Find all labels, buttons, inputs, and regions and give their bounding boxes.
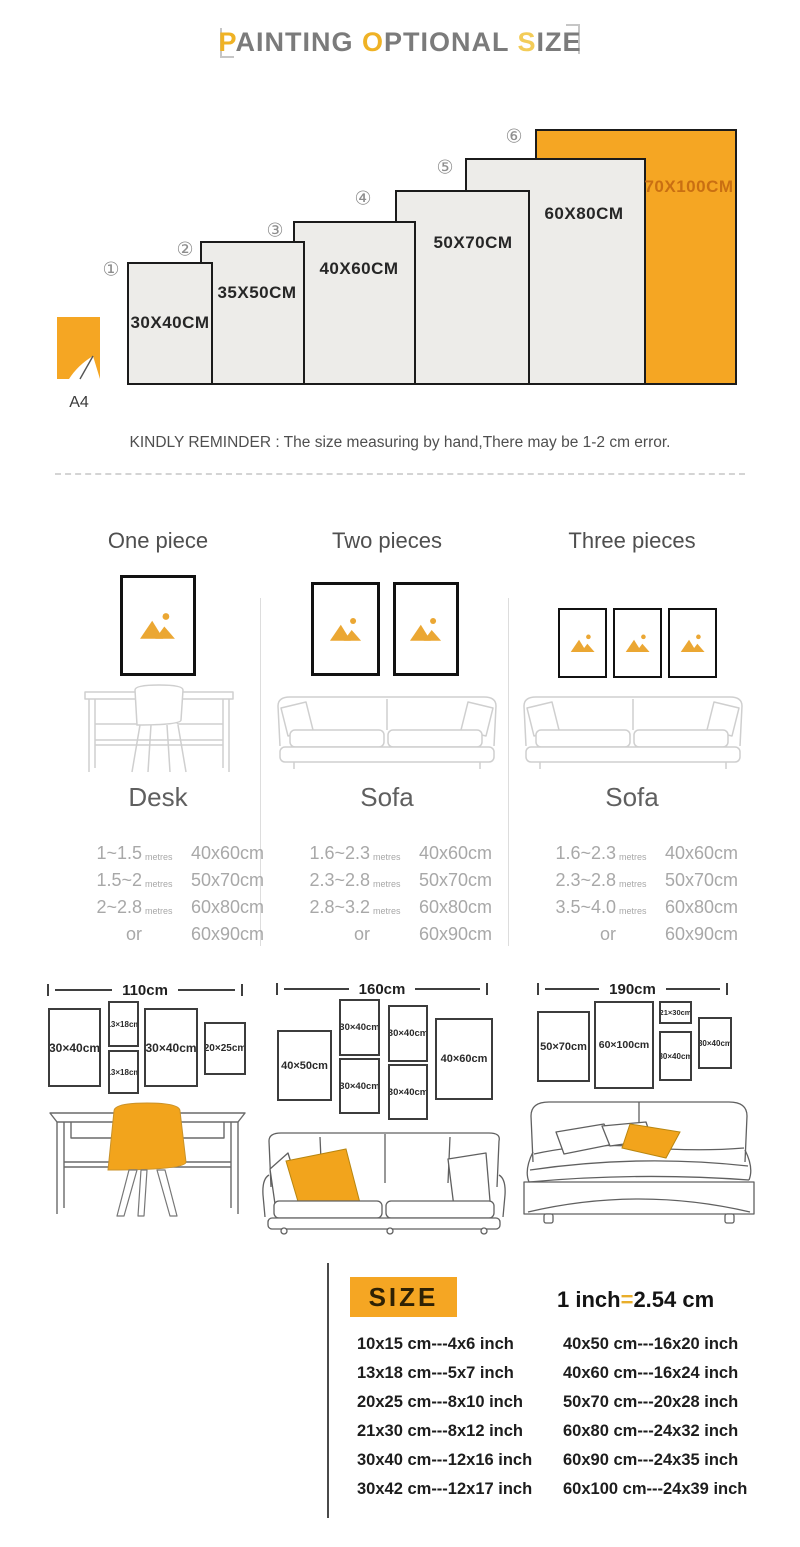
width-ruler-160cm: 160cm	[276, 982, 488, 996]
distance-row: 2.3~2.8metres50x70cm	[532, 867, 736, 894]
recommended-size: 50x70cm	[655, 870, 738, 891]
distance-table-sofa-2pc: 1.6~2.3metres40x60cm 2.3~2.8metres50x70c…	[286, 840, 490, 948]
wall-frame: 13×18cm	[108, 1001, 139, 1047]
conversion-row: 30x40 cm---12x16 inch	[357, 1446, 532, 1475]
canvas-frame	[558, 608, 607, 678]
distance-table-desk: 1~1.5metres40x60cm 1.5~2metres50x70cm 2~…	[58, 840, 262, 948]
distance-range: or	[532, 924, 616, 945]
ruler-line	[55, 989, 112, 991]
sofa-sketch	[268, 688, 506, 772]
conversion-row: 60x80 cm---24x32 inch	[563, 1417, 747, 1446]
distance-row: 3.5~4.0metres60x80cm	[532, 894, 736, 921]
canvas-frame	[311, 582, 380, 676]
wall-frame: 30×40cm	[698, 1017, 732, 1069]
canvas-frame	[120, 575, 196, 676]
sofa-sketch	[514, 688, 752, 772]
distance-row: 2.8~3.2metres60x80cm	[286, 894, 490, 921]
ruler-label: 160cm	[355, 981, 410, 998]
wall-frame: 30×40cm	[388, 1005, 428, 1062]
size-bar-label: 60X80CM	[544, 204, 623, 224]
distance-range: 1.5~2	[58, 870, 142, 891]
distance-unit	[616, 931, 655, 938]
image-placeholder-icon	[329, 616, 363, 642]
desk-sketch	[80, 684, 238, 776]
equation-lhs: 1 inch	[557, 1287, 621, 1312]
size-bar-label: 40X60CM	[319, 259, 398, 279]
distance-row: 1.6~2.3metres40x60cm	[532, 840, 736, 867]
conversion-list-right: 40x50 cm---16x20 inch 40x60 cm---16x24 i…	[563, 1330, 747, 1504]
conversion-row: 40x60 cm---16x24 inch	[563, 1359, 747, 1388]
size-bar-label-highlight: 70X100CM	[644, 177, 733, 197]
painting-size-infographic: PAINTING OPTIONAL SIZE 30X40CM 35X50CM 4…	[0, 0, 800, 1547]
circled-number: ⑥	[505, 126, 522, 149]
recommended-size: 40x60cm	[655, 843, 738, 864]
wall-frame: 30×40cm	[48, 1008, 101, 1087]
recommended-size: 60x80cm	[409, 897, 492, 918]
distance-unit	[370, 931, 409, 938]
distance-table-sofa-3pc: 1.6~2.3metres40x60cm 2.3~2.8metres50x70c…	[532, 840, 736, 948]
furniture-label-desk: Desk	[128, 782, 187, 813]
title-text: AINTING	[235, 27, 362, 57]
wall-frame: 20×25cm	[204, 1022, 246, 1075]
recommended-size: 40x60cm	[181, 843, 264, 864]
ruler-tick	[47, 984, 49, 996]
distance-row: or60x90cm	[532, 921, 736, 948]
conversion-row: 13x18 cm---5x7 inch	[357, 1359, 532, 1388]
column-divider	[508, 598, 509, 946]
distance-unit: metres	[370, 872, 409, 889]
distance-row: 1~1.5metres40x60cm	[58, 840, 262, 867]
width-ruler-190cm: 190cm	[537, 982, 728, 996]
distance-range: 1.6~2.3	[532, 843, 616, 864]
distance-row: 1.6~2.3metres40x60cm	[286, 840, 490, 867]
recommended-size: 60x90cm	[181, 924, 264, 945]
recommended-size: 60x90cm	[655, 924, 738, 945]
distance-range: 1~1.5	[58, 843, 142, 864]
size-bar-35x50	[200, 241, 305, 385]
wall-frame: 30×40cm	[388, 1064, 428, 1120]
title-letter: P	[218, 27, 235, 57]
distance-row: 2.3~2.8metres50x70cm	[286, 867, 490, 894]
ruler-tick	[241, 984, 243, 996]
column-header-three-pieces: Three pieces	[568, 528, 695, 554]
distance-row: 2~2.8metres60x80cm	[58, 894, 262, 921]
page-title: PAINTING OPTIONAL SIZE	[0, 27, 800, 58]
conversion-row: 60x100 cm---24x39 inch	[563, 1475, 747, 1504]
conversion-row: 50x70 cm---20x28 inch	[563, 1388, 747, 1417]
wall-frame: 13×18cm	[108, 1050, 139, 1094]
wall-frame: 30×40cm	[144, 1008, 198, 1087]
size-badge: SIZE	[350, 1277, 457, 1317]
distance-unit: metres	[616, 899, 655, 916]
a4-paper-icon	[56, 316, 102, 382]
conversion-row: 10x15 cm---4x6 inch	[357, 1330, 532, 1359]
a4-label: A4	[69, 394, 89, 412]
inch-cm-equation: 1 inch=2.54 cm	[557, 1287, 714, 1313]
width-ruler-110cm: 110cm	[47, 983, 243, 997]
title-text: IZE	[537, 27, 582, 57]
image-placeholder-icon	[625, 633, 651, 653]
size-bar-label: 35X50CM	[217, 283, 296, 303]
title-letter: S	[518, 27, 537, 57]
wall-frame: 30×40cm	[339, 999, 380, 1056]
wall-frame: 40×50cm	[277, 1030, 332, 1101]
equals-sign: =	[621, 1287, 634, 1312]
recommended-size: 50x70cm	[181, 870, 264, 891]
wall-frame: 60×100cm	[594, 1001, 654, 1089]
bed-sketch	[520, 1092, 758, 1224]
title-text: PTIONAL	[384, 27, 518, 57]
sofa-with-pillow-sketch	[260, 1125, 510, 1235]
ruler-line	[666, 988, 720, 990]
distance-row: or60x90cm	[58, 921, 262, 948]
wall-frame: 30×40cm	[659, 1031, 692, 1081]
title-letter: O	[362, 27, 384, 57]
conversion-row: 21x30 cm---8x12 inch	[357, 1417, 532, 1446]
distance-unit: metres	[142, 872, 181, 889]
size-bar-40x60	[293, 221, 416, 385]
distance-unit: metres	[142, 899, 181, 916]
ruler-line	[415, 988, 480, 990]
wall-frame: 50×70cm	[537, 1011, 590, 1082]
recommended-size: 50x70cm	[409, 870, 492, 891]
distance-range: 2~2.8	[58, 897, 142, 918]
conversion-row: 60x90 cm---24x35 inch	[563, 1446, 747, 1475]
canvas-frame	[668, 608, 717, 678]
wall-frame: 40×60cm	[435, 1018, 493, 1100]
recommended-size: 60x90cm	[409, 924, 492, 945]
recommended-size: 40x60cm	[409, 843, 492, 864]
furniture-label-sofa: Sofa	[360, 782, 414, 813]
canvas-frame	[613, 608, 662, 678]
image-placeholder-icon	[139, 611, 177, 640]
distance-unit: metres	[616, 872, 655, 889]
reminder-text: KINDLY REMINDER : The size measuring by …	[0, 434, 800, 452]
ruler-tick	[726, 983, 728, 995]
distance-unit	[142, 931, 181, 938]
circled-number: ①	[102, 259, 119, 282]
circled-number: ⑤	[436, 157, 453, 180]
ruler-tick	[537, 983, 539, 995]
ruler-label: 110cm	[118, 982, 172, 999]
ruler-label: 190cm	[605, 981, 660, 998]
conversion-row: 20x25 cm---8x10 inch	[357, 1388, 532, 1417]
image-placeholder-icon	[680, 633, 706, 653]
conversion-list-left: 10x15 cm---4x6 inch 13x18 cm---5x7 inch …	[357, 1330, 532, 1504]
distance-range: 2.3~2.8	[532, 870, 616, 891]
ruler-line	[284, 988, 349, 990]
canvas-frame	[393, 582, 459, 676]
distance-range: or	[58, 924, 142, 945]
recommended-size: 60x80cm	[181, 897, 264, 918]
distance-row: or60x90cm	[286, 921, 490, 948]
distance-unit: metres	[370, 845, 409, 862]
distance-range: 2.8~3.2	[286, 897, 370, 918]
dashed-divider	[55, 473, 745, 475]
distance-unit: metres	[370, 899, 409, 916]
conversion-row: 30x42 cm---12x17 inch	[357, 1475, 532, 1504]
wall-frame: 30×40cm	[339, 1058, 380, 1114]
size-bar-label: 30X40CM	[130, 313, 209, 333]
column-header-two-pieces: Two pieces	[332, 528, 442, 554]
size-bar-label: 50X70CM	[433, 233, 512, 253]
circled-number: ③	[266, 220, 283, 243]
image-placeholder-icon	[409, 616, 443, 642]
circled-number: ④	[354, 188, 371, 211]
image-placeholder-icon	[570, 633, 596, 653]
ruler-tick	[486, 983, 488, 995]
furniture-label-sofa: Sofa	[605, 782, 659, 813]
distance-range: 1.6~2.3	[286, 843, 370, 864]
ruler-line	[178, 989, 235, 991]
distance-range: 2.3~2.8	[286, 870, 370, 891]
distance-unit: metres	[616, 845, 655, 862]
ruler-tick	[276, 983, 278, 995]
distance-range: or	[286, 924, 370, 945]
wall-frame: 21×30cm	[659, 1001, 692, 1024]
distance-unit: metres	[142, 845, 181, 862]
distance-row: 1.5~2metres50x70cm	[58, 867, 262, 894]
equation-rhs: 2.54 cm	[633, 1287, 714, 1312]
circled-number: ②	[176, 239, 193, 262]
desk-with-chair-sketch	[45, 1098, 250, 1220]
column-header-one-piece: One piece	[108, 528, 208, 554]
conversion-row: 40x50 cm---16x20 inch	[563, 1330, 747, 1359]
distance-range: 3.5~4.0	[532, 897, 616, 918]
recommended-size: 60x80cm	[655, 897, 738, 918]
section-border-line	[327, 1263, 329, 1518]
ruler-line	[545, 988, 599, 990]
